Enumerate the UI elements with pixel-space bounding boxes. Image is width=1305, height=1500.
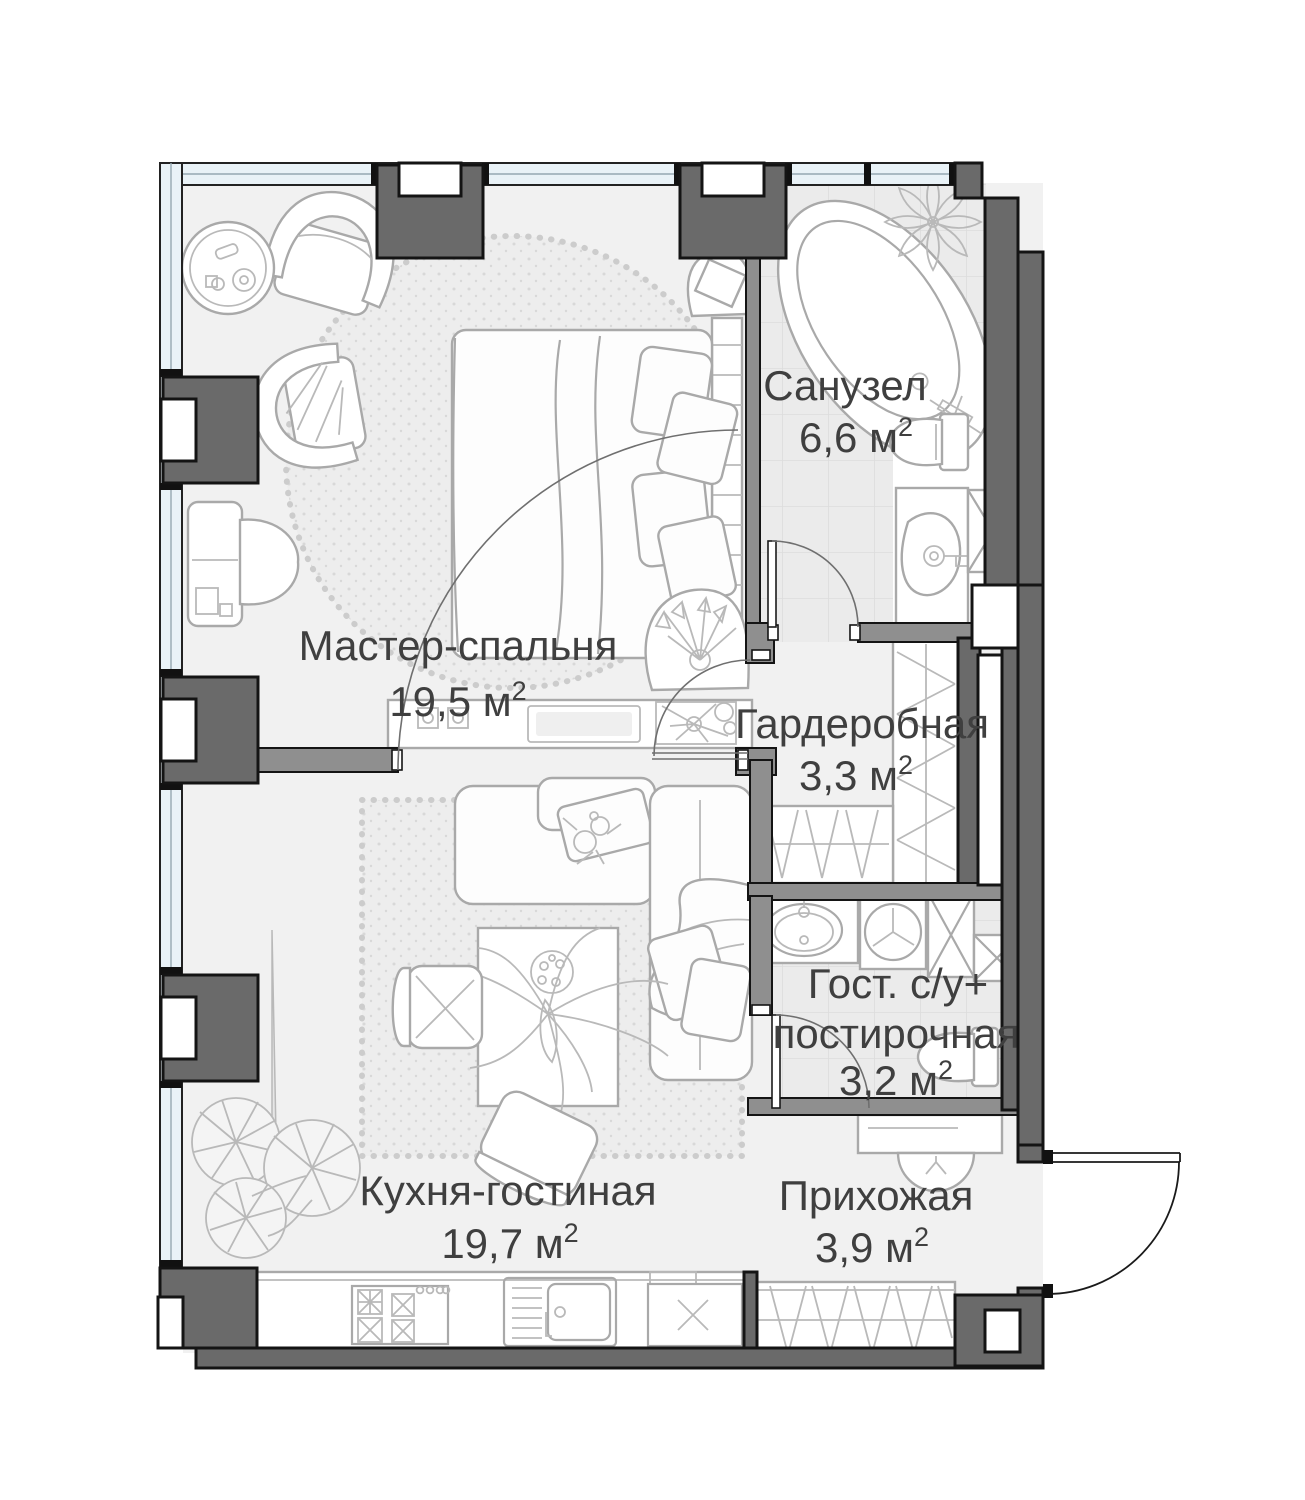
- jamb: [850, 625, 860, 640]
- entry-door: [1043, 1150, 1180, 1298]
- jamb: [392, 750, 402, 770]
- side-table-round: [182, 222, 274, 314]
- pilaster-left-3: [161, 975, 258, 1081]
- shaft-1: [972, 585, 1018, 648]
- wall-bathroom-south: [858, 623, 972, 642]
- entry-door-leaf: [1046, 1153, 1180, 1162]
- label-kitchen-living: Кухня-гостиная: [359, 1167, 656, 1214]
- wall-bedroom-living: [258, 748, 398, 772]
- kitchen-counter: [257, 1272, 744, 1348]
- wardrobe-rail-bottom: [754, 806, 893, 883]
- wall-wc-left: [750, 896, 772, 1015]
- pilaster-top-2: [680, 163, 786, 258]
- wall-wardrobe-left: [750, 760, 772, 895]
- window-wall-top: [160, 163, 957, 185]
- label-guest-wc-1: Гост. с/у+: [808, 960, 988, 1007]
- jamb: [752, 1005, 770, 1015]
- vanity-sink-bathroom: [896, 488, 970, 626]
- entry-door-arc: [1047, 1162, 1179, 1294]
- area-guest-wc: 3,2 м2: [839, 1055, 953, 1104]
- washing-machine-icon: [860, 893, 926, 969]
- label-hallway: Прихожая: [779, 1172, 974, 1219]
- area-bathroom: 6,6 м2: [799, 412, 913, 461]
- entry-jamb-top: [1018, 1145, 1043, 1162]
- label-master-bedroom: Мастер-спальня: [299, 622, 618, 669]
- area-hallway: 3,9 м2: [815, 1222, 929, 1271]
- pilaster-left-2: [161, 677, 258, 783]
- label-bathroom: Санузел: [763, 362, 927, 409]
- jamb: [752, 650, 770, 660]
- wall-wardrobe-wc: [748, 883, 1004, 900]
- area-kitchen-living: 19,7 м2: [441, 1218, 578, 1267]
- floor-plan-page: Мастер-спальня 19,5 м2 Санузел 6,6 м2 Га…: [0, 0, 1305, 1500]
- door-leaf-bathroom: [768, 541, 776, 627]
- label-guest-wc-2: постирочная: [773, 1010, 1020, 1057]
- shaft-3: [985, 1310, 1020, 1352]
- area-wardrobe: 3,3 м2: [799, 750, 913, 799]
- label-wardrobe: Гардеробная: [735, 700, 989, 747]
- chair-left: [393, 966, 482, 1048]
- pilaster-top-1: [377, 163, 483, 258]
- area-master-bedroom: 19,5 м2: [389, 676, 526, 725]
- shaft-2: [978, 655, 1002, 885]
- nightstand-top: [688, 252, 750, 316]
- floor-plan-drawing: Мастер-спальня 19,5 м2 Санузел 6,6 м2 Га…: [0, 0, 1305, 1500]
- pilaster-left-1: [161, 377, 258, 483]
